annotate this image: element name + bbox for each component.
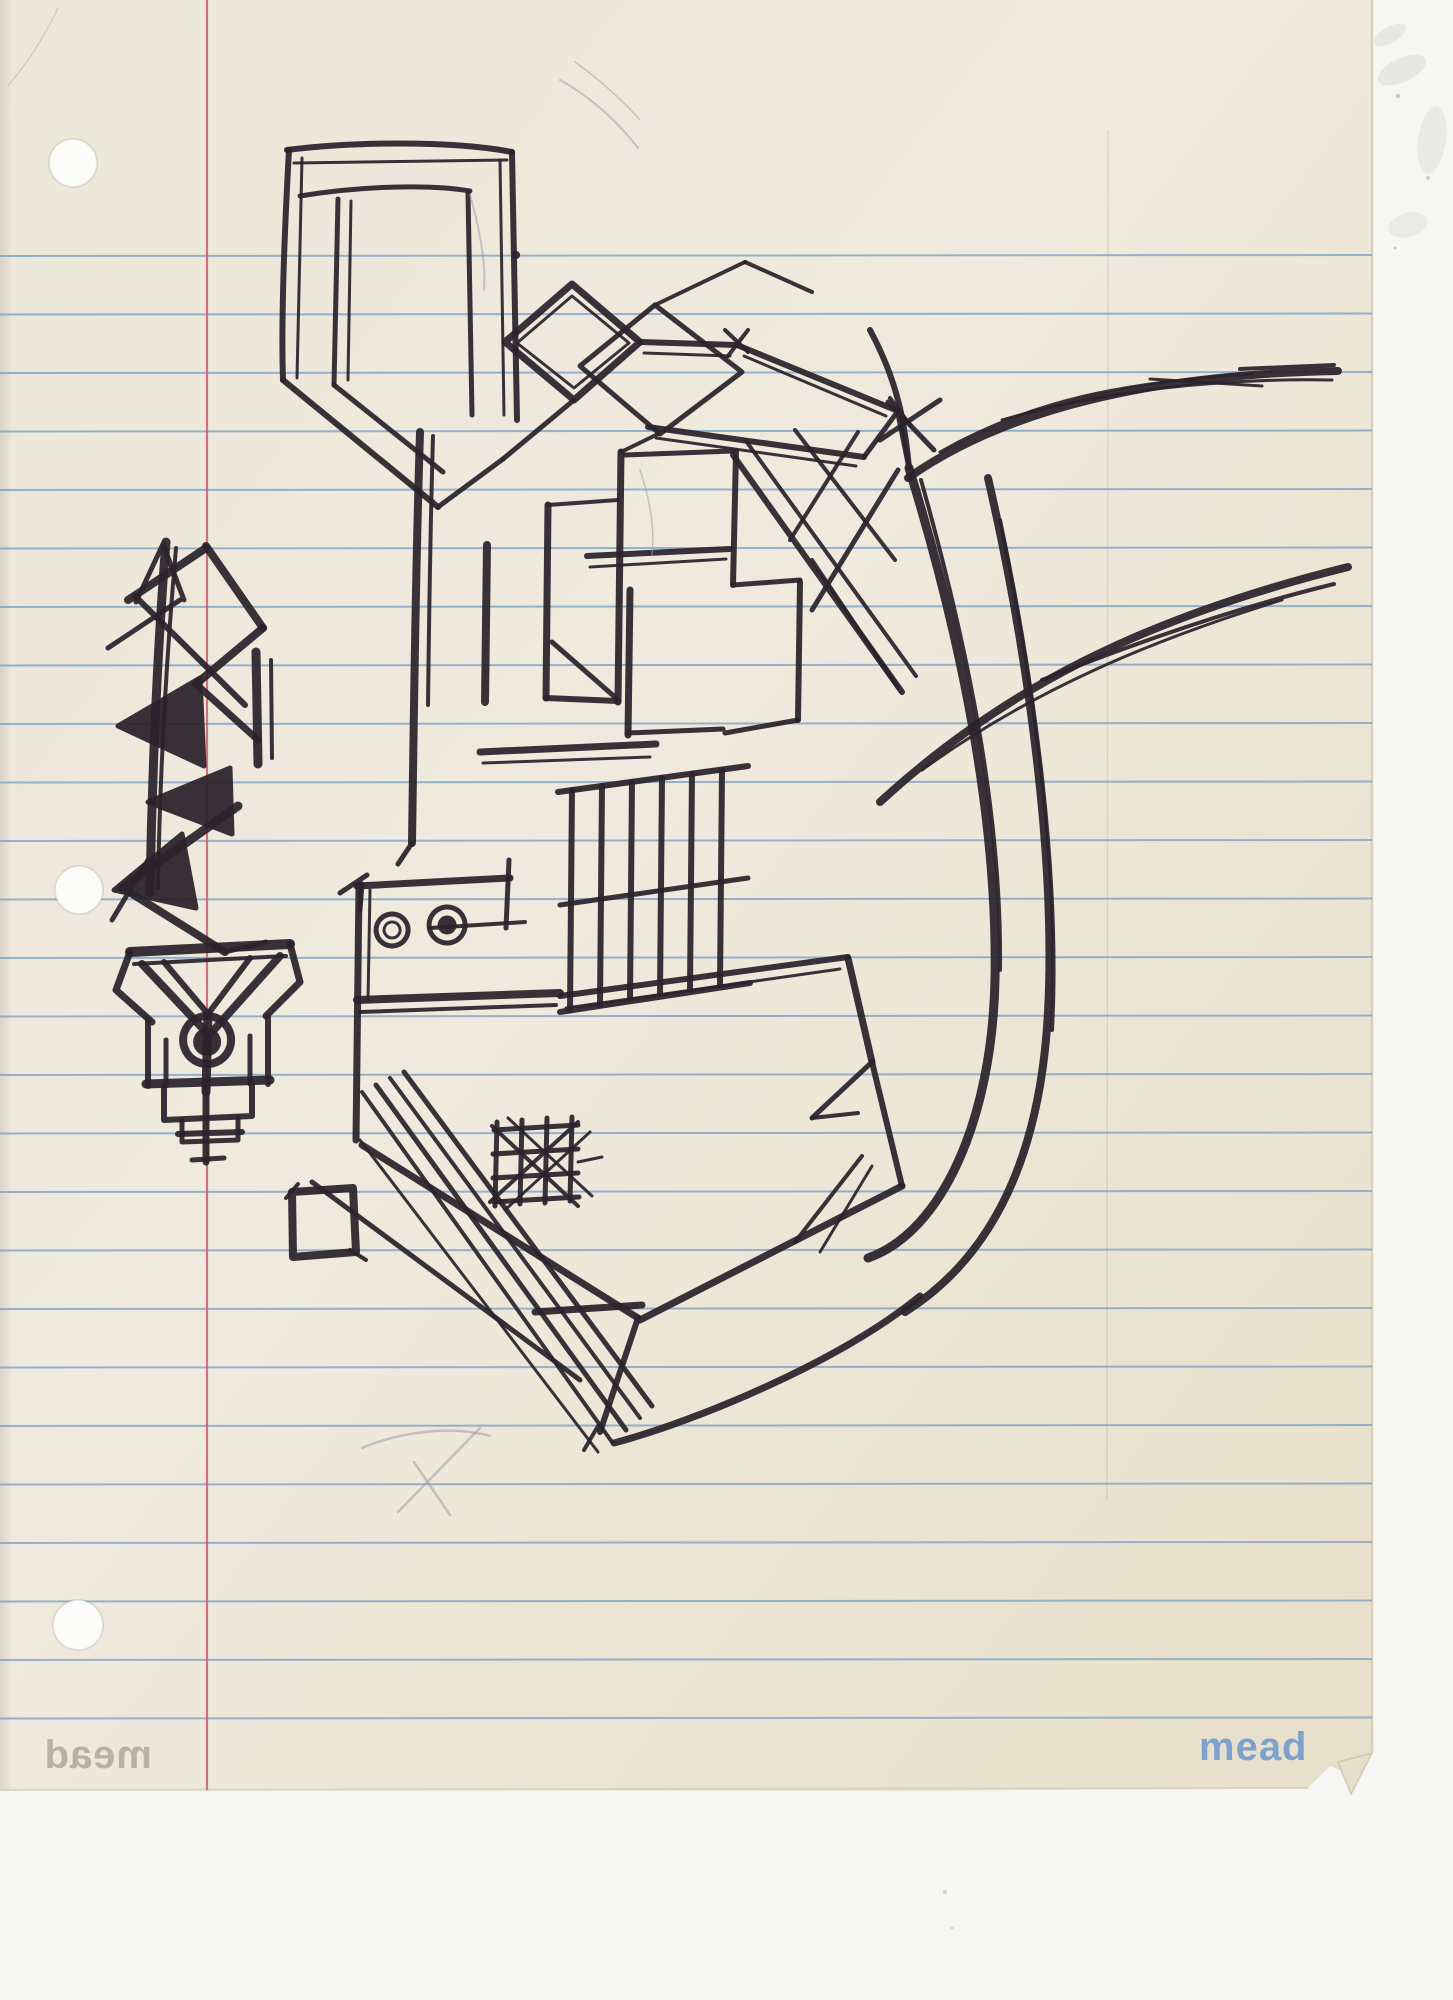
- ink-stroke: [600, 786, 602, 1005]
- ruled-line: [0, 255, 1372, 256]
- ink-stroke: [798, 582, 800, 720]
- ink-stroke: [720, 770, 722, 985]
- ruled-line: [0, 899, 1372, 900]
- ruled-line: [0, 1484, 1372, 1485]
- ruled-line: [0, 489, 1372, 490]
- hole-punch: [55, 866, 103, 914]
- ink-stroke: [545, 1118, 547, 1203]
- brand-logo-mirrored: mead: [44, 1733, 153, 1777]
- ruled-line: [0, 1601, 1372, 1602]
- ink-stroke: [368, 890, 370, 1000]
- ruled-line: [0, 1659, 1372, 1660]
- ruled-line: [0, 840, 1372, 841]
- ruled-line: [0, 723, 1372, 724]
- ink-stroke: [178, 1132, 242, 1134]
- ruled-line: [0, 1367, 1372, 1368]
- ink-stroke: [660, 778, 662, 994]
- notebook-paper: [0, 0, 1372, 1794]
- ruled-line: [0, 1425, 1372, 1426]
- ruled-line: [0, 372, 1372, 373]
- ink-stroke: [256, 652, 258, 764]
- ink-stroke: [630, 782, 632, 999]
- ink-stroke: [513, 252, 519, 258]
- ink-stroke: [195, 1030, 219, 1054]
- ruled-line: [0, 314, 1372, 315]
- ink-stroke: [690, 774, 692, 989]
- ruled-line: [0, 957, 1372, 958]
- ink-stroke: [192, 1158, 224, 1160]
- brand-logo: mead: [1199, 1725, 1308, 1769]
- ink-stroke: [570, 790, 572, 1010]
- ink-stroke: [546, 698, 618, 701]
- ruled-line: [0, 1542, 1372, 1543]
- scan-canvas: mead mead: [0, 0, 1453, 2000]
- ink-stroke: [618, 452, 621, 702]
- ruled-line: [0, 1250, 1372, 1251]
- scanned-notebook-page: mead mead: [0, 0, 1453, 2000]
- hole-punch: [49, 139, 97, 187]
- ruled-line: [0, 1718, 1372, 1719]
- ink-stroke: [640, 342, 737, 345]
- paper-sheet: [0, 0, 1372, 1791]
- ink-stroke: [271, 660, 272, 758]
- hole-punch: [53, 1600, 103, 1650]
- ink-stroke: [628, 590, 630, 735]
- ruled-line: [0, 1308, 1372, 1309]
- ink-stroke: [506, 860, 509, 928]
- ruled-line: [0, 606, 1372, 607]
- ink-stroke: [546, 505, 548, 698]
- ink-stroke: [733, 452, 736, 585]
- ruled-line: [0, 1191, 1372, 1192]
- left-edge-shadow: [0, 0, 12, 1790]
- ink-stroke: [485, 545, 487, 702]
